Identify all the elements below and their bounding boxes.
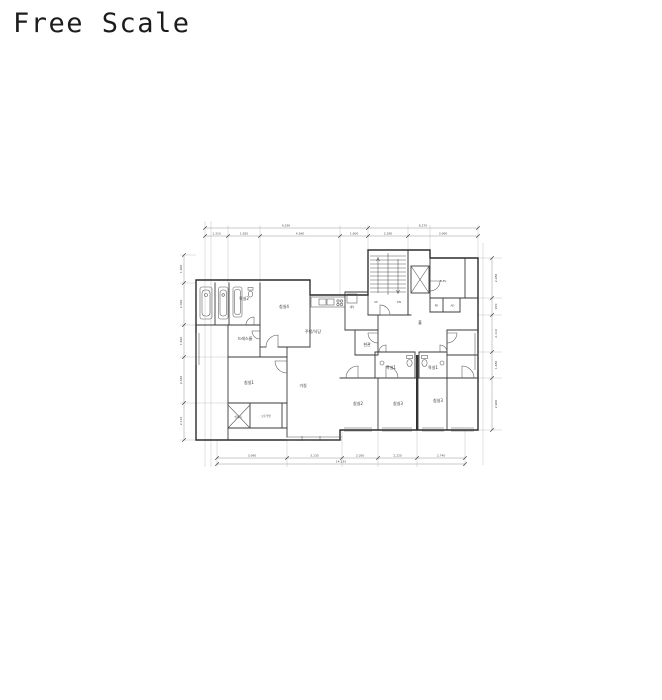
dim-label: 2,620: [179, 376, 183, 385]
room-label-laundry: 세탁: [350, 305, 355, 309]
staircase-icon: UP DN: [368, 250, 408, 315]
dim-label: 3,990: [439, 232, 448, 236]
dim-label: 2,280: [384, 232, 393, 236]
dim-label: 2,110: [494, 329, 498, 338]
room-label-bed3: 침실3: [393, 400, 403, 406]
dim-label: 3,135: [310, 454, 319, 458]
dim-label: 1,600: [179, 265, 183, 274]
dim-label: 2,390: [179, 300, 183, 309]
room-label-bed3b: 침실3: [433, 397, 443, 403]
dim-label: 9,290: [282, 224, 291, 228]
room-label-bed1: 침실1: [244, 379, 254, 385]
dim-label: 2,960: [494, 400, 498, 409]
room-label-bed4: 침실4: [279, 303, 289, 309]
dim-label: 2,050: [356, 454, 365, 458]
floor-plan: UP DN: [170, 215, 515, 480]
dim-label: 1,310: [212, 232, 221, 236]
stairs-down-label: DN: [397, 300, 401, 304]
party-wall: [416, 355, 418, 430]
dim-label: 1,820: [240, 232, 249, 236]
dimension-right: 2,280 970 2,110 1,480 2,960: [490, 256, 498, 432]
dim-label: 14,135: [336, 460, 347, 464]
outer-walls: [196, 250, 478, 440]
room-label-subkitchen: 보조주방: [261, 414, 271, 418]
dim-label: 2,280: [494, 274, 498, 283]
dimension-top: 9,290 6,270 1,310 1,820 4,560 1,600 2,28…: [203, 224, 480, 238]
dim-label: 1,820: [179, 337, 183, 346]
room-label-hall: 홀: [418, 319, 422, 325]
room-label-entrance: 현관: [363, 341, 371, 347]
page-title: Free Scale: [13, 8, 191, 39]
room-labels: 욕실2 침실4 드레스룸 침실1 거실 주방/식당 현관 욕실1 욕실1 침실2…: [234, 279, 454, 419]
room-label-bed2: 침실2: [353, 400, 363, 406]
room-label-dressroom: 드레스룸: [238, 335, 253, 341]
dim-label: 3,990: [248, 454, 257, 458]
dim-label: 1,600: [350, 232, 359, 236]
room-label-ad: AD: [451, 304, 455, 308]
room-label-pd: PD: [435, 304, 439, 308]
dimension-left: 1,600 2,390 1,820 2,620 2,110: [179, 253, 186, 442]
elevator-icon: [411, 266, 429, 293]
room-label-kitchen: 주방/식당: [305, 328, 321, 334]
dim-label: 1,480: [494, 361, 498, 370]
stairs-up-label: UP: [374, 300, 378, 304]
room-label-elev: ELEV: [440, 279, 447, 283]
dim-label: 2,740: [437, 454, 446, 458]
dimension-bottom: 3,990 3,135 2,050 2,220 2,740 14,135: [215, 454, 467, 466]
dim-label: 2,110: [179, 417, 183, 426]
room-label-acunit: 실외기: [234, 415, 242, 419]
room-label-bath2: 욕실2: [239, 295, 249, 301]
room-label-bath1-left: 욕실1: [386, 364, 396, 370]
room-label-bath1-right: 욕실1: [428, 364, 438, 370]
room-label-living: 거실: [299, 382, 307, 388]
bathtub-icon: [200, 287, 242, 319]
dim-label: 6,270: [419, 224, 428, 228]
interior-walls: [196, 250, 478, 440]
dim-label: 4,560: [296, 232, 305, 236]
dim-label: 2,220: [393, 454, 402, 458]
window-lines: [196, 333, 478, 441]
dim-label: 970: [494, 304, 498, 310]
